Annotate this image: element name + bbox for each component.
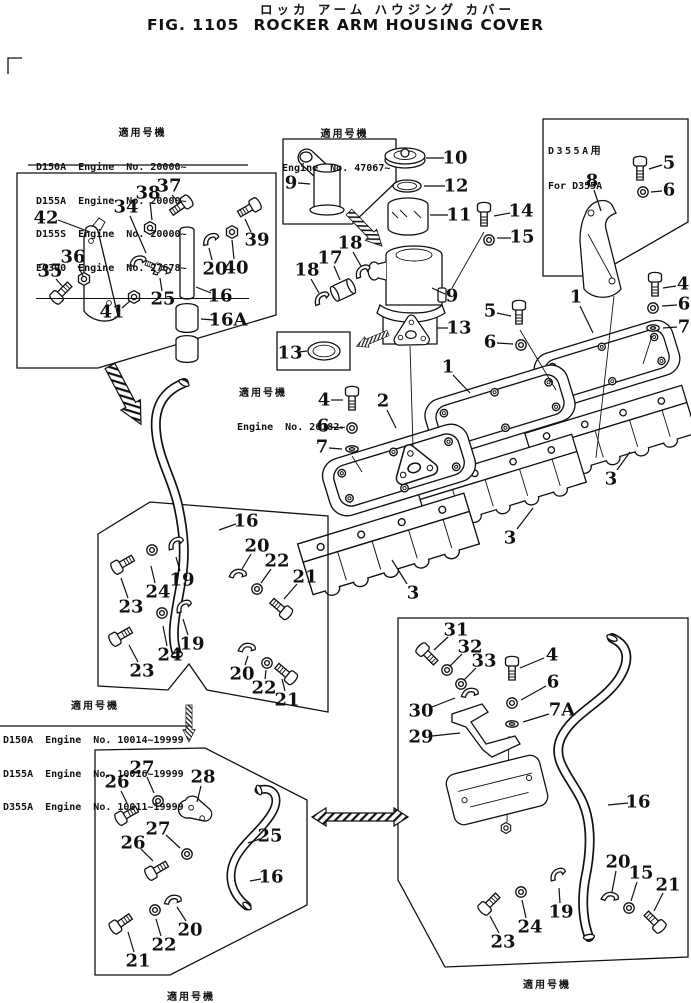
part-callout-4: 4 [677, 274, 690, 295]
washer-24-a [147, 545, 157, 555]
leader-line [497, 313, 511, 316]
leader-line [663, 286, 676, 288]
leader-line [612, 871, 616, 892]
part-callout-11: 11 [446, 205, 471, 226]
part-callout-3: 3 [407, 583, 420, 604]
part-callout-5: 5 [663, 153, 676, 174]
applicability-header: 適用号機 [452, 980, 642, 991]
leader-line [121, 578, 128, 598]
hose-16a [176, 304, 198, 363]
washer-24-c [516, 887, 526, 897]
leader-line [631, 882, 637, 901]
part-callout-19: 19 [169, 570, 194, 591]
part-callout-29: 29 [408, 727, 433, 748]
part-callout-2: 2 [377, 391, 390, 412]
applicability-breather: 適用号機 Engine No. 47067~ [282, 107, 407, 197]
parts-catalog-page: ロッカ アーム ハウジング カバー FIG. 1105ROCKER ARM HO… [0, 0, 691, 1003]
applicability-mid-left: 適用号機 D150A Engine No. 10014~19999 D155A … [3, 679, 187, 836]
arrow-gasket [354, 328, 390, 352]
part-callout-21: 21 [125, 951, 150, 972]
part-callout-16A: 16A [208, 310, 248, 331]
applicability-header: 適用号機 [36, 128, 249, 139]
washer-22-a [252, 584, 262, 594]
part-callout-25: 25 [257, 826, 282, 847]
part-callout-10: 10 [442, 148, 467, 169]
applicability-line: D150A Engine No. 10014~19999 [3, 735, 187, 746]
part-callout-20: 20 [605, 852, 630, 873]
tube-25-16 [231, 784, 276, 911]
part-callout-21: 21 [274, 690, 299, 711]
applicability-header: 適用号機 [237, 388, 362, 399]
washer-24-b [157, 608, 167, 618]
sleeve-17 [329, 278, 358, 303]
part-callout-22: 22 [264, 551, 289, 572]
clamp-18-left [312, 291, 330, 306]
part-callout-33: 33 [471, 651, 496, 672]
leader-line [432, 698, 455, 707]
leader-line [311, 279, 319, 293]
bolt-21-d [642, 909, 668, 935]
applicability-line: D155A Engine No. 20000~ [36, 196, 249, 207]
part-callout-19: 19 [548, 902, 573, 923]
part-callout-22: 22 [251, 678, 276, 699]
part-callout-6: 6 [547, 672, 560, 693]
applicability-line: D355A Engine No. 10011~19999 [3, 802, 187, 813]
variant-label-jp: D355A用 [548, 146, 603, 158]
rocker-housing-left [298, 493, 482, 601]
applicability-line: EG300 Engine No. 27678~ [36, 263, 249, 274]
part-callout-23: 23 [118, 597, 143, 618]
nut-plate [501, 823, 510, 834]
part-callout-21: 21 [292, 567, 317, 588]
variant-label-en: For D355A [548, 181, 603, 193]
bolt-21-b [273, 661, 299, 686]
bracket-29 [452, 704, 520, 757]
cover-plate [444, 753, 550, 827]
washer-6-right [648, 303, 658, 313]
bolt-14 [478, 202, 491, 226]
applicability-line: Engine No. 26182~ [237, 422, 362, 433]
applicability-bottom-right: 適用号機 EG300 Engine No. 22146~27677 [452, 958, 642, 1003]
arrow-double-horizontal [312, 808, 408, 826]
applicability-header: 適用号機 [282, 129, 407, 140]
washer-27-b [182, 849, 192, 859]
part-callout-13: 13 [277, 343, 302, 364]
leader-line [156, 919, 161, 936]
bolt-31 [414, 641, 440, 667]
bolt-5-mid [513, 300, 526, 324]
leader-line [580, 306, 593, 333]
leader-line [490, 916, 499, 933]
leader-line [517, 508, 533, 529]
part-callout-4: 4 [546, 645, 559, 666]
leader-line [497, 343, 513, 344]
washer-7-right [647, 325, 659, 331]
applicability-gasket: 適用号機 Engine No. 26182~ [237, 366, 362, 456]
bottom-right-tube-parts [414, 633, 667, 940]
part-callout-16: 16 [233, 511, 258, 532]
bolt-21-c [107, 911, 134, 935]
breather-body-9 [368, 246, 446, 322]
washer-6-mid [516, 340, 526, 350]
part-callout-7A: 7A [549, 700, 577, 721]
washer-6-br [507, 698, 517, 708]
part-callout-15: 15 [509, 227, 534, 248]
part-callout-21: 21 [655, 875, 680, 896]
applicability-header: 適用号機 [100, 992, 282, 1003]
arrow-upper-left [100, 361, 150, 430]
bolt-23-c [476, 891, 502, 917]
part-callout-9: 9 [446, 286, 459, 307]
part-callout-1: 1 [442, 357, 455, 378]
part-callout-16: 16 [625, 792, 650, 813]
bolt-23-b [107, 624, 134, 647]
leader-line [432, 733, 460, 736]
part-callout-17: 17 [317, 248, 342, 269]
leader-line [128, 932, 134, 952]
applicability-line: D155S Engine No. 20000~ [36, 229, 249, 240]
washer-6-top [638, 187, 648, 197]
gasket-13-oring [308, 342, 340, 360]
bolt-5-top [634, 156, 647, 180]
part-callout-3: 3 [504, 528, 517, 549]
leader-line [163, 626, 167, 646]
clamp-19-c [549, 867, 567, 881]
applicability-bottom-left: 適用号機 D155S Engine No. 15182~19999 [100, 970, 282, 1003]
part-callout-24: 24 [517, 917, 542, 938]
leader-line [662, 305, 677, 306]
part-callout-28: 28 [190, 767, 215, 788]
bolt-23-a [109, 552, 136, 575]
leader-line [129, 645, 138, 662]
applicability-top-left: 適用号機 D150A Engine No. 20000~ D155A Engin… [36, 106, 249, 299]
washer-32 [442, 665, 452, 675]
part-callout-5: 5 [484, 301, 497, 322]
element-11 [388, 198, 428, 235]
applicability-line: D150A Engine No. 20000~ [36, 162, 249, 173]
leader-line [523, 714, 549, 722]
part-callout-22: 22 [151, 935, 176, 956]
washer-7a [506, 721, 518, 727]
part-callout-41: 41 [99, 302, 124, 323]
part-callout-16: 16 [258, 867, 283, 888]
part-callout-14: 14 [508, 201, 533, 222]
part-callout-20: 20 [177, 920, 202, 941]
leader-line [520, 658, 544, 668]
applicability-header: 適用号機 [3, 701, 187, 712]
part-callout-18: 18 [294, 260, 319, 281]
part-callout-15: 15 [628, 863, 653, 884]
part-callout-24: 24 [145, 582, 170, 603]
leader-line [151, 566, 155, 583]
leader-line [649, 165, 662, 169]
washer-33 [456, 679, 466, 689]
leader-line [654, 893, 663, 911]
clamp-20-a [229, 567, 247, 581]
leader-line [522, 900, 526, 918]
part-callout-7: 7 [678, 317, 691, 338]
part-callout-12: 12 [443, 176, 468, 197]
clamp-20-d [601, 890, 619, 905]
leader-line [453, 375, 470, 393]
part-callout-3: 3 [605, 469, 618, 490]
clamp-20-c [164, 894, 182, 907]
washer-15-b [624, 903, 634, 913]
applicability-line: Engine No. 47067~ [282, 163, 407, 174]
part-callout-6: 6 [484, 332, 497, 353]
page-corner-mark [8, 58, 22, 74]
leader-line [353, 252, 361, 266]
part-callout-30: 30 [408, 701, 433, 722]
part-callout-1: 1 [570, 287, 583, 308]
part-callout-6: 6 [678, 294, 691, 315]
washer-22-c [150, 905, 160, 915]
bolt-26-b [143, 858, 170, 881]
bolt-4-br [506, 656, 519, 680]
leader-line [651, 191, 662, 192]
bolt-4-right [649, 272, 662, 296]
part-callout-6: 6 [663, 180, 676, 201]
part-callout-19: 19 [179, 634, 204, 655]
leader-line [521, 686, 546, 700]
washer-15 [484, 235, 494, 245]
washer-22-b [262, 658, 272, 668]
clamp-20-b [238, 641, 256, 655]
part-callout-13: 13 [446, 318, 471, 339]
part-callout-23: 23 [490, 932, 515, 953]
bolt-21-a [268, 596, 294, 621]
variant-tag-d355a: D355A用 For D355A [548, 123, 603, 215]
leader-line [387, 410, 396, 428]
applicability-line: D155A Engine No. 10016~19999 [3, 769, 187, 780]
